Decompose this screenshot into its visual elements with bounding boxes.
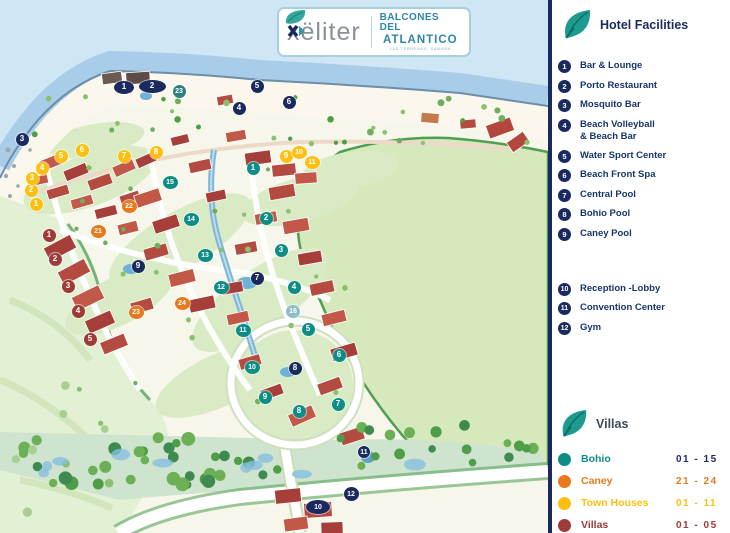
map-marker-facility-11: 11	[358, 446, 370, 458]
map-marker-townhouse-4: 4	[36, 162, 49, 175]
map-marker-bohio-12: 12	[214, 281, 229, 294]
facility-label: Bar & Lounge	[580, 60, 642, 72]
facility-item-7: 7Central Pool	[558, 189, 728, 202]
map-marker-bohio-5: 5	[302, 323, 315, 336]
facilities-list: 1Bar & Lounge2Porto Restaurant3Mosquito …	[558, 60, 728, 341]
map-marker-bohio-15: 15	[163, 176, 178, 189]
map-marker-townhouse-2: 2	[25, 184, 38, 197]
map-marker-caney-22: 22	[122, 200, 137, 213]
map-marker-villa-5: 5	[84, 333, 97, 346]
map-marker-bohio-2: 2	[260, 212, 273, 225]
map-marker-bohio-10: 10	[245, 361, 260, 374]
map-marker-facility-7: 7	[251, 272, 264, 285]
category-name: Town Houses	[581, 497, 676, 509]
map-marker-caney-23: 23	[129, 306, 144, 319]
villas-header: Villas	[558, 408, 728, 440]
facility-number-badge: 11	[558, 302, 571, 315]
facility-label: Reception -Lobby	[580, 283, 660, 295]
facility-number-badge: 9	[558, 228, 571, 241]
facility-label: Convention Center	[580, 302, 665, 314]
map-marker-facility-5: 5	[251, 80, 264, 93]
facility-number-badge: 6	[558, 169, 571, 182]
facility-number-badge: 10	[558, 283, 571, 296]
facility-item-1: 1Bar & Lounge	[558, 60, 728, 73]
facility-number-badge: 2	[558, 80, 571, 93]
logo-divider	[371, 16, 372, 48]
map-marker-bohio-7: 7	[332, 398, 345, 411]
facility-label: Beach Front Spa	[580, 169, 656, 181]
facility-item-11: 11Convention Center	[558, 302, 728, 315]
facility-number-badge: 5	[558, 150, 571, 163]
leaf-icon	[560, 8, 592, 42]
property-line1: BALCONES DEL	[380, 13, 461, 34]
map-marker-villa-2: 2	[49, 253, 62, 266]
logo-plate: xëliter BALCONES DEL ATLANTICO LAS TERRE…	[277, 7, 471, 57]
map-marker-townhouse-1: 1	[30, 198, 43, 211]
facility-label: Water Sport Center	[580, 150, 666, 162]
map-marker-facility-12: 12	[344, 487, 359, 501]
map-marker-facility-3: 3	[16, 133, 29, 146]
map-marker-townhouse-3: 3	[26, 172, 39, 185]
category-range: 21 - 24	[676, 476, 728, 487]
facility-item-12: 12Gym	[558, 322, 728, 335]
map-marker-facility-10: 10	[306, 500, 330, 514]
map-marker-bohio-3: 3	[275, 244, 288, 257]
villas-legend: Villas Bohio01 - 15Caney21 - 24Town Hous…	[558, 408, 728, 533]
facility-label: Beach Volleyball& Beach Bar	[580, 119, 655, 144]
map-marker-villa-4: 4	[72, 305, 85, 318]
map-marker-bohio-4: 4	[288, 281, 301, 294]
map-marker-villa-1: 1	[43, 229, 56, 242]
map-marker-bohio-13: 13	[198, 249, 213, 262]
map-marker-facility-6: 6	[283, 96, 296, 109]
property-line2: ATLANTICO	[383, 34, 458, 46]
facility-item-8: 8Bohio Pool	[558, 208, 728, 221]
map-marker-bohio-11: 11	[236, 324, 251, 337]
facility-label: Caney Pool	[580, 228, 632, 240]
villas-category-list: Bohio01 - 15Caney21 - 24Town Houses01 - …	[558, 448, 728, 533]
facility-item-10: 10Reception -Lobby	[558, 283, 728, 296]
facility-number-badge: 12	[558, 322, 571, 335]
facility-label: Porto Restaurant	[580, 80, 657, 92]
map-marker-caney-21: 21	[91, 225, 106, 238]
map-marker-facility-9: 9	[132, 260, 145, 273]
map-marker-bohio-14: 14	[184, 213, 199, 226]
villa-category-caney: Caney21 - 24	[558, 470, 728, 492]
villa-category-villas: Villas01 - 05	[558, 514, 728, 533]
facility-label: Gym	[580, 322, 601, 334]
map-marker-caney-24: 24	[175, 297, 190, 310]
facility-item-9: 9Caney Pool	[558, 228, 728, 241]
villas-title: Villas	[596, 417, 628, 431]
map-marker-townhouse-8: 8	[150, 146, 163, 159]
map-marker-bohio_dark-23: 23	[173, 85, 186, 98]
map-marker-facility-4: 4	[233, 102, 246, 115]
map-marker-bohio-6: 6	[333, 349, 346, 362]
map-marker-villa-3: 3	[62, 280, 75, 293]
resort-map: 1234567891011122312345678910111213141516…	[0, 0, 548, 533]
map-marker-facility-2: 2	[139, 80, 166, 93]
map-marker-bohio_pale-16: 16	[286, 305, 300, 318]
facility-number-badge: 7	[558, 189, 571, 202]
category-range: 01 - 11	[676, 498, 728, 509]
facility-label: Bohio Pool	[580, 208, 630, 220]
category-range: 01 - 05	[676, 520, 728, 531]
facility-item-4: 4Beach Volleyball& Beach Bar	[558, 119, 728, 144]
facility-item-6: 6Beach Front Spa	[558, 169, 728, 182]
category-range: 01 - 15	[676, 454, 728, 465]
facility-item-5: 5Water Sport Center	[558, 150, 728, 163]
map-marker-townhouse-9: 9	[280, 150, 293, 163]
logo-leaf-icon	[283, 9, 309, 39]
map-marker-bohio-8: 8	[293, 405, 306, 418]
category-name: Caney	[581, 475, 676, 487]
villa-category-bohio: Bohio01 - 15	[558, 448, 728, 470]
map-marker-townhouse-6: 6	[76, 144, 89, 157]
map-marker-bohio-1: 1	[247, 162, 260, 175]
category-color-dot	[558, 453, 571, 466]
facility-item-2: 2Porto Restaurant	[558, 80, 728, 93]
legend-sidebar: Hotel Facilities 1Bar & Lounge2Porto Res…	[552, 0, 730, 533]
category-color-dot	[558, 497, 571, 510]
villa-category-town-houses: Town Houses01 - 11	[558, 492, 728, 514]
facility-number-badge: 4	[558, 119, 571, 132]
facility-label: Mosquito Bar	[580, 99, 641, 111]
category-name: Villas	[581, 519, 676, 531]
resort-map-page: 1234567891011122312345678910111213141516…	[0, 0, 730, 533]
map-marker-layer: 1234567891011122312345678910111213141516…	[0, 0, 548, 533]
facility-number-badge: 3	[558, 99, 571, 112]
leaf-icon	[558, 408, 588, 440]
facility-number-badge: 1	[558, 60, 571, 73]
facilities-title: Hotel Facilities	[600, 18, 688, 32]
map-marker-townhouse-11: 11	[305, 156, 320, 169]
facility-item-3: 3Mosquito Bar	[558, 99, 728, 112]
map-marker-facility-8: 8	[289, 362, 302, 375]
facility-number-badge: 8	[558, 208, 571, 221]
category-name: Bohio	[581, 453, 676, 465]
facilities-header: Hotel Facilities	[560, 8, 688, 42]
map-marker-townhouse-7: 7	[118, 150, 131, 163]
map-marker-facility-1: 1	[114, 81, 134, 94]
property-name: BALCONES DEL ATLANTICO LAS TERRENAS, SAM…	[380, 13, 461, 51]
property-tagline: LAS TERRENAS, SAMANA	[390, 47, 452, 51]
map-marker-townhouse-5: 5	[55, 150, 68, 163]
category-color-dot	[558, 519, 571, 532]
category-color-dot	[558, 475, 571, 488]
facility-label: Central Pool	[580, 189, 636, 201]
map-marker-townhouse-10: 10	[292, 146, 307, 159]
map-marker-bohio-9: 9	[259, 391, 272, 404]
